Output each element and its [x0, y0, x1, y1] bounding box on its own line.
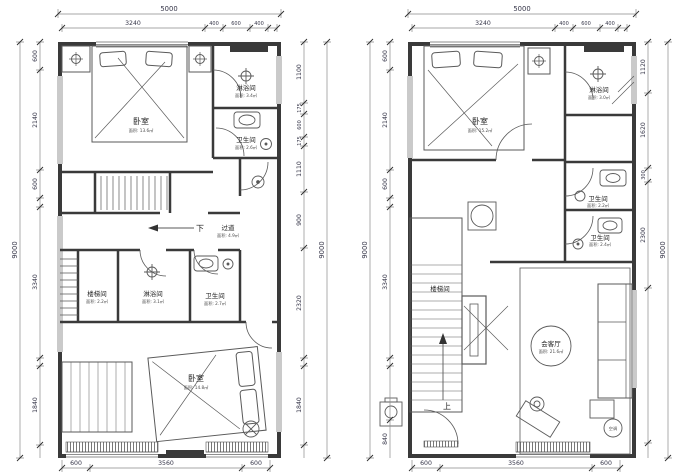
room-area-stairwell: 面积: 2.2㎡	[86, 298, 109, 305]
room-area-shower-top: 面积: 3.4㎡	[235, 92, 258, 99]
floor-plan-left: 卧室 面积: 13.6㎡ 淋浴间 面积: 3.4㎡ 卫生间 面积: 2.6㎡ 下…	[56, 40, 283, 458]
room-area-bath-lower: 面积: 2.4㎡	[589, 241, 612, 248]
wardrobe	[62, 362, 132, 432]
dim-top-total: 5000	[160, 5, 177, 13]
room-area-bedroom-bottom: 面积: 14.8㎡	[184, 384, 209, 391]
shower-symbol-top	[238, 68, 254, 84]
room-label-bath-lower: 卫生间	[590, 233, 610, 242]
basin-corridor	[252, 176, 264, 188]
dim-r3: 300	[641, 170, 647, 180]
bed	[424, 46, 524, 150]
window	[406, 40, 638, 458]
room-label-shower-mid: 淋浴间	[143, 289, 163, 298]
down-label: 下	[196, 224, 204, 233]
room-label-corridor: 过道	[222, 223, 236, 232]
room-area-bath-upper: 面积: 2.2㎡	[587, 202, 610, 209]
dim-left-total: 9000	[361, 241, 369, 258]
dim-top-seg2: 400	[559, 21, 569, 27]
inner-walls	[410, 44, 634, 262]
room-label-bath-upper: 卫生间	[588, 194, 608, 203]
room-area-living: 面积: 21.6㎡	[539, 348, 564, 355]
floor-plan-right: 空调 卧室 面积: 15.2㎡ 淋浴间 面积: 3.0㎡ 卫生间 面积: 2.2…	[380, 40, 638, 458]
dim-r4: 175	[297, 136, 303, 146]
dim-top-seg2: 400	[209, 21, 219, 27]
room-area-corridor: 面积: 4.9㎡	[217, 232, 240, 239]
dim-l4: 3340	[32, 274, 39, 290]
door-arcs	[424, 72, 593, 444]
appliance-outside	[380, 398, 402, 426]
room-label-bedroom: 卧室	[472, 116, 488, 126]
sink-top	[261, 139, 272, 150]
desk	[516, 401, 559, 437]
room-label-shower-top: 淋浴间	[236, 83, 256, 92]
down-arrow	[148, 225, 194, 232]
radiator-top	[230, 45, 268, 52]
dim-bottom-seg1: 600	[420, 460, 432, 467]
sofa	[598, 284, 632, 398]
floor-plan-drawing: 卧室 面积: 13.6㎡ 淋浴间 面积: 3.4㎡ 卫生间 面积: 2.6㎡ 下…	[0, 0, 694, 473]
dim-l4: 3340	[382, 274, 389, 290]
room-label-bath-mid: 卫生间	[205, 291, 225, 300]
dim-bottom-seg1: 600	[70, 460, 82, 467]
dim-r1: 1120	[640, 59, 647, 75]
room-label-shower: 淋浴间	[589, 85, 609, 94]
room-area-bedroom-top: 面积: 13.6㎡	[129, 127, 154, 134]
stairs	[410, 218, 508, 412]
nightstand-left	[62, 46, 90, 72]
room-label-stairwell: 楼梯间	[430, 284, 450, 293]
side-table	[590, 400, 614, 418]
room-area-shower: 面积: 3.0㎡	[588, 94, 611, 101]
dim-top-seg4: 400	[254, 21, 264, 27]
dim-r4: 2300	[640, 227, 647, 243]
dim-r2: 1620	[640, 122, 647, 138]
room-label-stairwell: 楼梯间	[87, 289, 107, 298]
dim-right-total: 9000	[318, 241, 326, 258]
bed-bottom	[148, 347, 266, 442]
drawing-svg: 卧室 面积: 13.6㎡ 淋浴间 面积: 3.4㎡ 卫生间 面积: 2.6㎡ 下…	[0, 0, 694, 473]
dim-top-seg3: 600	[581, 21, 591, 27]
stool	[530, 397, 544, 411]
dim-r1: 1100	[296, 64, 303, 80]
dim-top-total: 5000	[513, 5, 530, 13]
room-label-living: 会客厅	[541, 339, 561, 348]
dim-bottom-seg3: 600	[250, 460, 262, 467]
nightstand	[528, 48, 550, 74]
dim-l3: 600	[32, 178, 39, 190]
dim-l2: 2140	[382, 112, 389, 128]
door-threshold	[166, 450, 204, 456]
shaft-table	[468, 202, 496, 230]
dim-r8: 1840	[296, 397, 303, 413]
sink-mid	[223, 259, 233, 269]
radiator-bottom	[516, 442, 590, 452]
dim-top-seg3: 600	[231, 21, 241, 27]
dim-l5: 840	[382, 433, 389, 445]
stair-flight-hatch	[101, 176, 167, 210]
dim-r5: 1110	[296, 161, 303, 177]
room-area-bedroom: 面积: 15.2㎡	[468, 127, 493, 134]
room-label-bedroom-top: 卧室	[133, 116, 149, 126]
dim-left-total: 9000	[11, 241, 19, 258]
dim-r3: 600	[297, 120, 303, 130]
room-area-bath-top: 面积: 2.6㎡	[235, 144, 258, 151]
dim-top-seg4: 400	[605, 21, 615, 27]
dim-right-total: 9000	[659, 241, 667, 258]
up-arrow	[439, 333, 447, 400]
dim-l5: 1840	[32, 397, 39, 413]
dimensions-right-plan: 5000 3240 400 600 400 9000 600 2140 600 …	[361, 5, 672, 473]
radiator-bottom-left	[66, 442, 158, 452]
entry-door-leaf	[424, 441, 458, 447]
radiator-top	[584, 45, 624, 52]
toilet-mid	[194, 256, 218, 271]
room-label-bath-top: 卫生间	[236, 135, 256, 144]
dim-l2: 2140	[32, 112, 39, 128]
nightstand-right	[189, 46, 211, 72]
room-label-bedroom-bottom: 卧室	[188, 373, 204, 383]
dim-bottom-seg2: 3560	[158, 460, 174, 467]
dim-l1: 600	[382, 50, 389, 62]
dim-top-seg1: 3240	[475, 20, 491, 27]
dim-r2: 175	[297, 103, 303, 113]
dim-r6: 900	[296, 214, 303, 226]
dim-top-seg1: 3240	[125, 20, 141, 27]
room-area-shower-mid: 面积: 3.1㎡	[142, 298, 165, 305]
room-area-bath-mid: 面积: 2.7㎡	[204, 300, 227, 307]
outer-wall	[410, 44, 634, 456]
dim-bottom-seg2: 3560	[508, 460, 524, 467]
dim-l1: 600	[32, 50, 39, 62]
radiator-bottom-right	[206, 442, 268, 452]
dim-r7: 2320	[296, 295, 303, 311]
toilet-top	[234, 112, 260, 128]
ac-label: 空调	[609, 425, 617, 432]
dim-l3: 600	[382, 178, 389, 190]
shower-symbol-mid	[144, 264, 160, 280]
up-label: 上	[443, 402, 451, 411]
dim-bottom-seg3: 600	[600, 460, 612, 467]
